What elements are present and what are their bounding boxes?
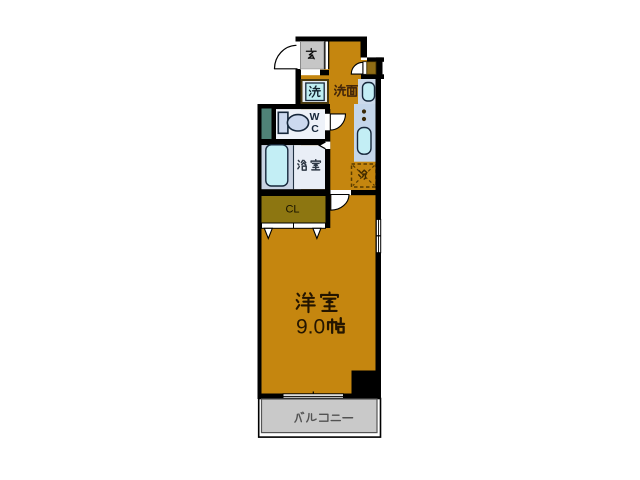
svg-text:9.0: 9.0	[296, 316, 325, 339]
svg-text:W: W	[310, 111, 320, 123]
svg-text:C: C	[311, 123, 319, 135]
svg-text:CL: CL	[285, 204, 299, 216]
